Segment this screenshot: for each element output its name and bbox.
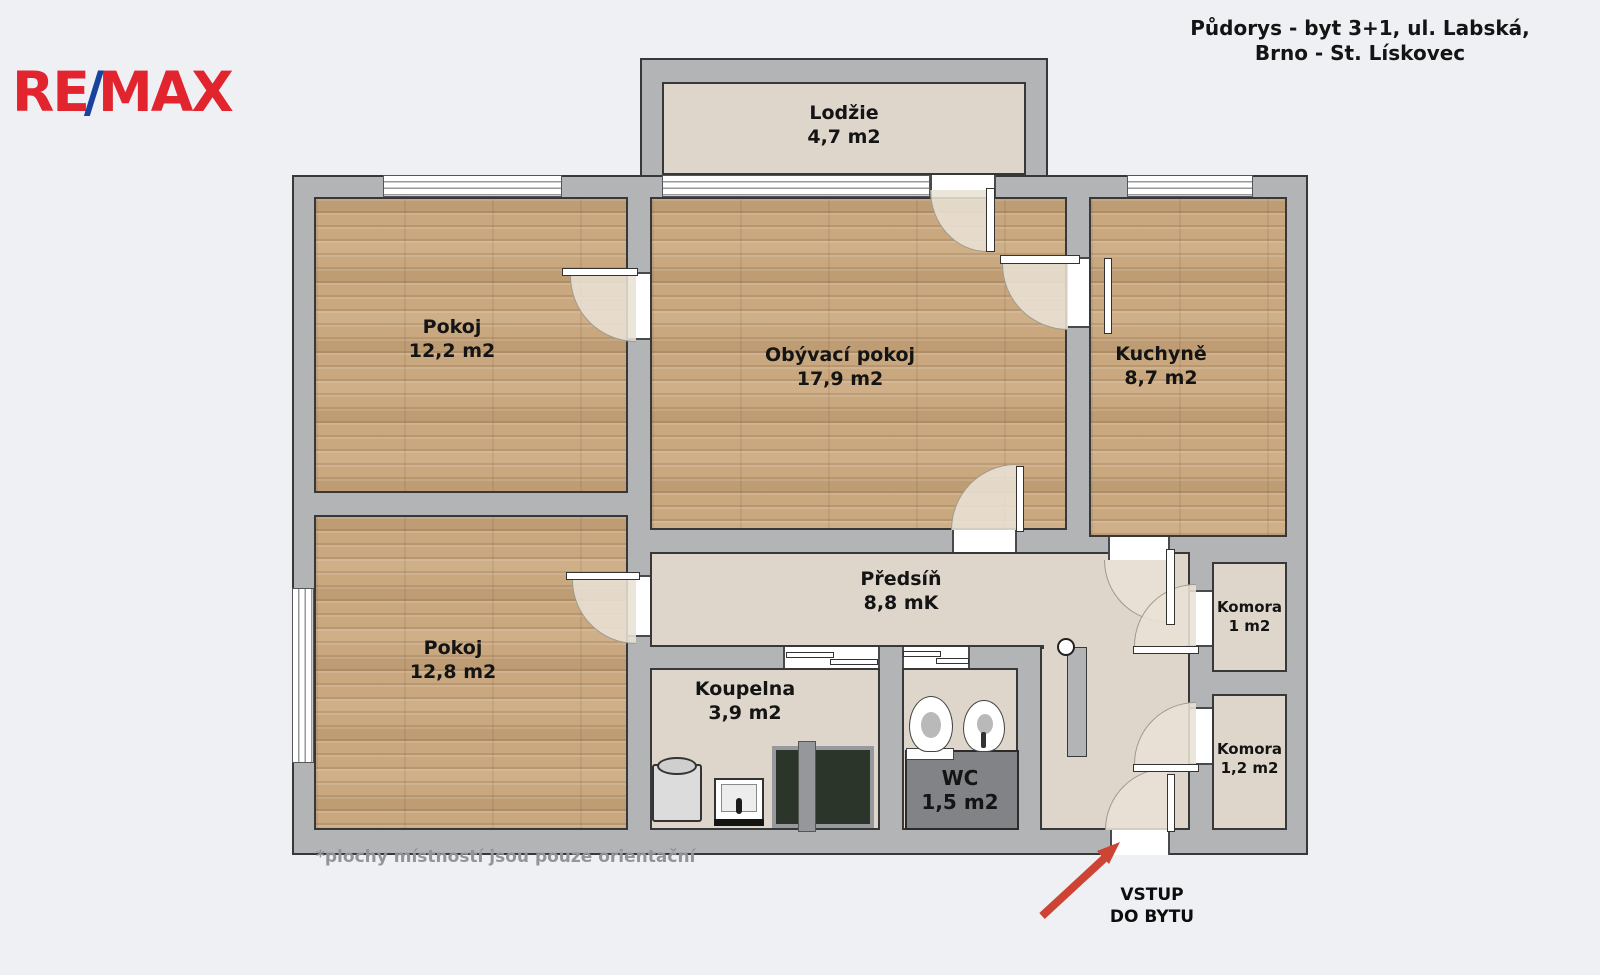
room-area: 1 m2	[1229, 617, 1271, 636]
sliding-door-wc-panel1	[903, 651, 941, 657]
room-name: Obývací pokoj	[765, 343, 915, 367]
washing-machine-lid-icon	[657, 757, 697, 775]
toilet-bowl-icon	[921, 712, 941, 738]
remax-logo: RE/MAX	[12, 60, 232, 124]
plan-title: Půdorys - byt 3+1, ul. Labská, Brno - St…	[1130, 16, 1590, 66]
sink-base-icon	[714, 819, 764, 826]
plan-title-line2: Brno - St. Lískovec	[1130, 41, 1590, 66]
room-area: 3,9 m2	[708, 701, 781, 725]
shower-icon	[772, 746, 874, 828]
logo-max: MAX	[98, 60, 232, 124]
door-leaf-pokoj2	[566, 572, 640, 580]
door-leaf-kuchyne-predsin	[1166, 549, 1175, 625]
room-area: 8,7 m2	[1124, 366, 1197, 390]
room-name: Předsíň	[860, 567, 941, 591]
door-leaf-lodzie	[986, 188, 995, 252]
bidet-bowl-icon	[977, 714, 993, 734]
door-leaf-kuchyne	[1000, 255, 1080, 264]
room-area: 8,8 mK	[864, 591, 939, 615]
entrance-line2: DO BYTU	[1082, 906, 1222, 928]
room-area: 12,2 m2	[409, 339, 496, 363]
room-name: Pokoj	[423, 315, 482, 339]
room-label-pokoj1: Pokoj 12,2 m2	[332, 315, 572, 363]
shower-divider-icon	[798, 741, 816, 832]
room-name: Kuchyně	[1115, 342, 1207, 366]
room-name: Komora	[1217, 598, 1282, 617]
door-leaf-obyvaci-predsin	[1016, 466, 1024, 532]
room-name: Koupelna	[695, 677, 795, 701]
entrance-label: VSTUP DO BYTU	[1082, 884, 1222, 928]
room-name: WC	[942, 766, 979, 790]
room-area: 17,9 m2	[797, 367, 884, 391]
window-pokoj1-top	[383, 175, 562, 197]
sliding-door-koupelna-panel2	[830, 659, 878, 665]
room-name: Pokoj	[424, 636, 483, 660]
room-label-predsin: Předsíň 8,8 mK	[751, 567, 1051, 615]
wall-corridor-stub	[1067, 647, 1087, 757]
column-dot	[1057, 638, 1075, 656]
room-label-komora1: Komora 1 m2	[1212, 562, 1287, 672]
plan-title-line1: Půdorys - byt 3+1, ul. Labská,	[1130, 16, 1590, 41]
room-label-obyvaci: Obývací pokoj 17,9 m2	[690, 343, 990, 391]
door-opening-kuchyne-predsin	[1108, 537, 1170, 560]
window-pokoj2-left	[292, 588, 314, 763]
door-leaf-komora1	[1133, 646, 1199, 654]
room-area: 4,7 m2	[807, 125, 880, 149]
room-area: 1,5 m2	[921, 790, 998, 814]
room-label-pokoj2: Pokoj 12,8 m2	[333, 636, 573, 684]
sliding-door-koupelna-panel1	[786, 652, 834, 658]
door-leaf-entrance	[1167, 774, 1175, 832]
door-leaf-pokoj1	[562, 268, 638, 276]
sink-tap-icon	[736, 798, 742, 814]
room-label-kuchyne: Kuchyně 8,7 m2	[1061, 342, 1261, 390]
door-jamb-kuchyne	[1104, 258, 1112, 334]
floorplan-page: { "header": { "logo": { "re": "RE", "sla…	[0, 0, 1600, 975]
footnote: *plochy místností jsou pouze orientační	[316, 847, 695, 867]
door-opening-kuchyne	[1067, 257, 1089, 328]
room-label-lodzie: Lodžie 4,7 m2	[694, 101, 994, 149]
room-label-wc: WC 1,5 m2	[902, 752, 1018, 828]
entrance-line1: VSTUP	[1082, 884, 1222, 906]
window-kuchyne-top	[1127, 175, 1253, 197]
window-lodzie	[662, 175, 930, 197]
logo-re: RE	[12, 60, 88, 124]
room-area: 12,8 m2	[410, 660, 497, 684]
door-leaf-komora2	[1133, 764, 1199, 772]
sliding-door-wc-panel2	[936, 658, 969, 664]
room-area: 1,2 m2	[1221, 759, 1279, 778]
door-opening-obyvaci-predsin	[952, 530, 1017, 552]
room-label-komora2: Komora 1,2 m2	[1212, 694, 1287, 824]
room-name: Lodžie	[809, 101, 878, 125]
bidet-tap-icon	[981, 732, 986, 748]
room-name: Komora	[1217, 740, 1282, 759]
room-label-koupelna: Koupelna 3,9 m2	[635, 677, 855, 725]
